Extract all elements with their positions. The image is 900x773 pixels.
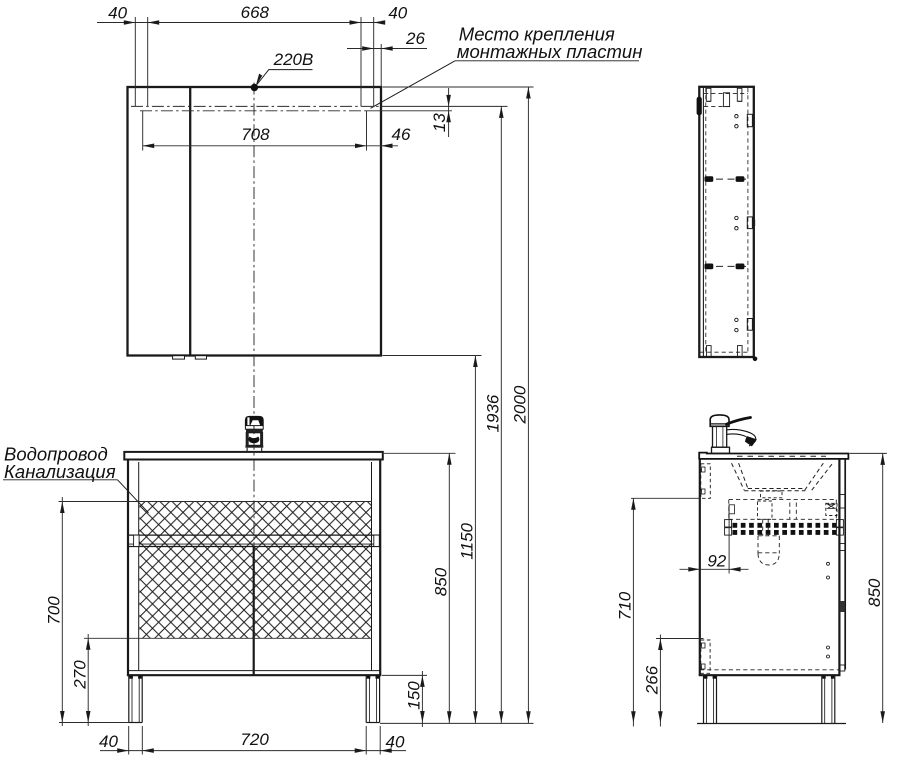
svg-text:40: 40 <box>108 3 127 22</box>
svg-text:850: 850 <box>865 578 884 607</box>
svg-text:13: 13 <box>430 113 449 132</box>
svg-text:710: 710 <box>616 591 635 620</box>
svg-text:220В: 220В <box>273 50 314 69</box>
svg-text:700: 700 <box>45 596 64 625</box>
svg-text:708: 708 <box>241 125 270 144</box>
svg-text:46: 46 <box>392 125 411 144</box>
svg-text:2000: 2000 <box>510 385 529 424</box>
svg-text:1150: 1150 <box>457 522 476 559</box>
svg-text:26: 26 <box>405 29 425 48</box>
svg-text:монтажных пластин: монтажных пластин <box>457 41 643 62</box>
svg-text:668: 668 <box>241 3 270 22</box>
svg-text:150: 150 <box>405 681 424 710</box>
svg-text:92: 92 <box>707 552 726 571</box>
svg-text:40: 40 <box>386 733 405 752</box>
svg-text:1936: 1936 <box>484 394 503 432</box>
svg-text:266: 266 <box>642 665 661 695</box>
svg-text:850: 850 <box>432 567 451 596</box>
svg-text:40: 40 <box>388 3 407 22</box>
svg-text:40: 40 <box>99 732 118 751</box>
svg-text:Канализация: Канализация <box>4 461 116 482</box>
svg-text:270: 270 <box>71 660 90 690</box>
svg-text:720: 720 <box>240 730 269 749</box>
